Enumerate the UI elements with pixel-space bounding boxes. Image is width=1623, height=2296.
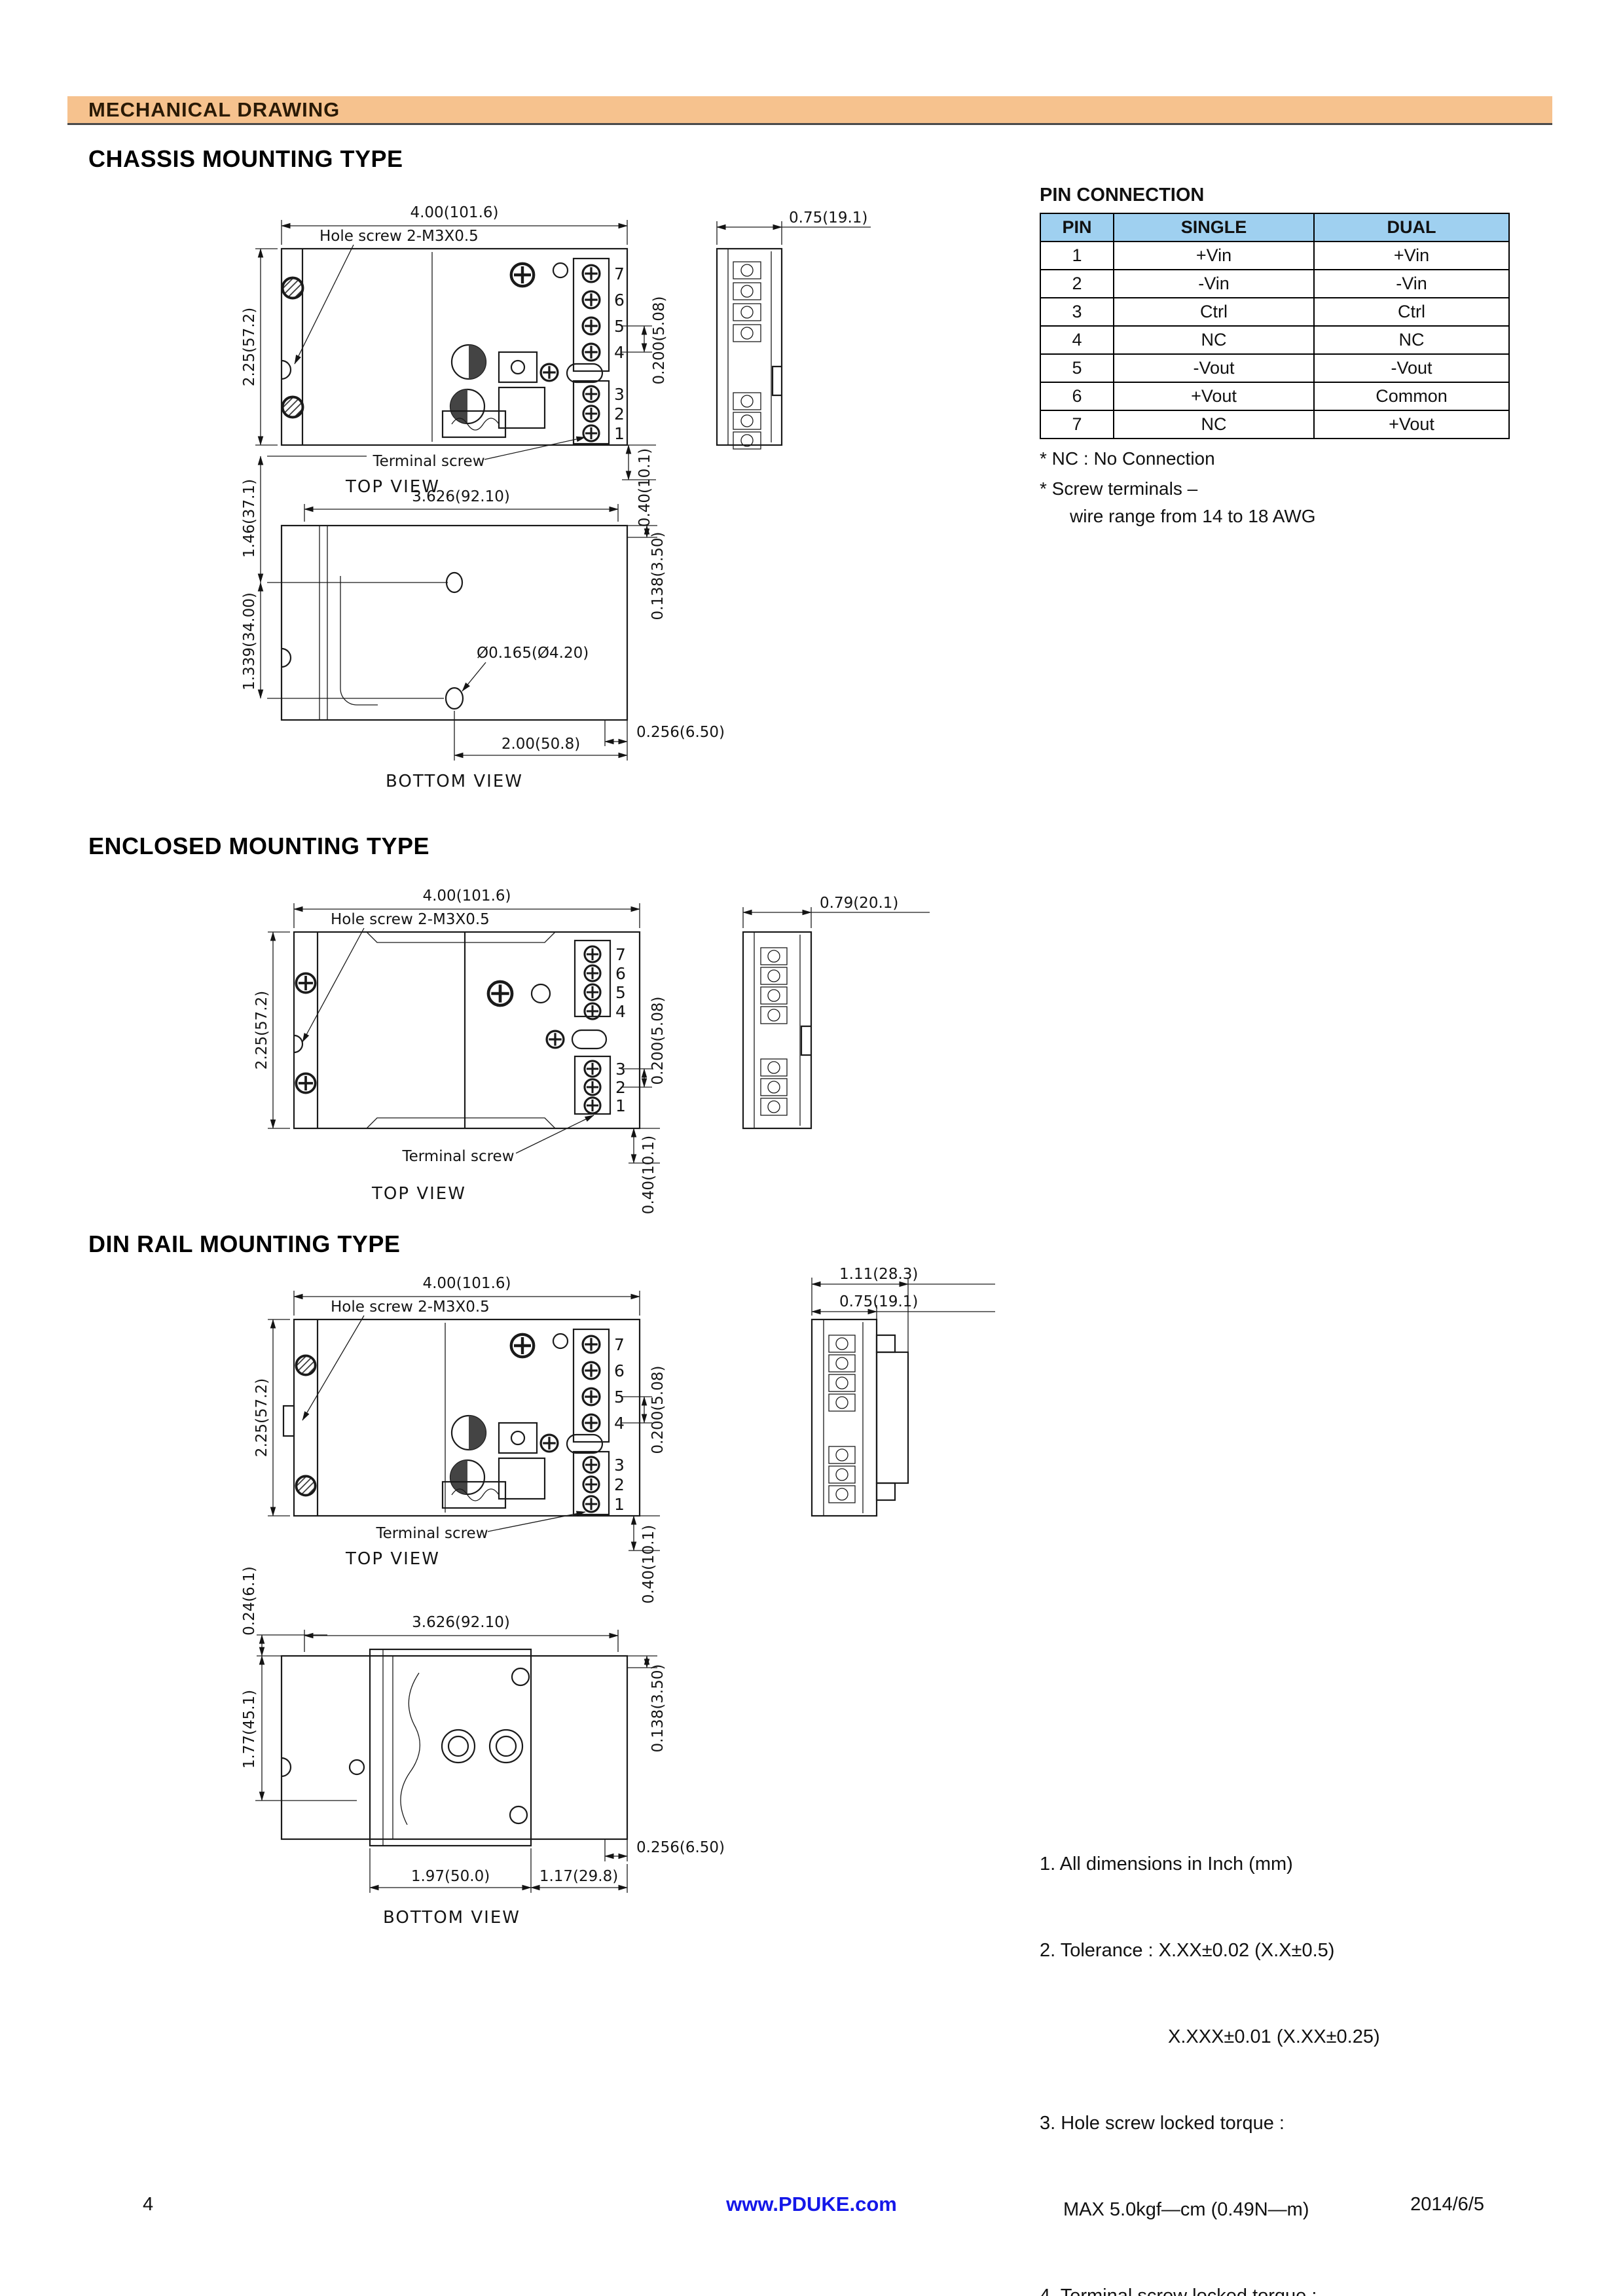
dim-label: 2.25(57.2) xyxy=(241,308,258,386)
dim-label: 1.11(28.3) xyxy=(839,1266,918,1283)
hole-screw-label: Hole screw 2-M3X0.5 xyxy=(331,1299,490,1316)
cell-dual: -Vout xyxy=(1314,354,1509,382)
table-row: 5-Vout-Vout xyxy=(1040,354,1509,382)
pin-number: 5 xyxy=(615,983,626,1002)
cell-single: NC xyxy=(1114,326,1314,354)
pin-number: 6 xyxy=(614,1361,625,1380)
drawing-notes: 1. All dimensions in Inch (mm) 2. Tolera… xyxy=(1040,1792,1380,2296)
pin-number: 3 xyxy=(614,385,625,404)
cell-pin: 6 xyxy=(1040,382,1114,410)
pin-number: 4 xyxy=(615,1002,626,1021)
cell-dual: Common xyxy=(1314,382,1509,410)
cell-dual: -Vin xyxy=(1314,270,1509,298)
pin-number: 3 xyxy=(614,1456,625,1475)
cell-dual: NC xyxy=(1314,326,1509,354)
chassis-side-view-drawing: 0.75(19.1) xyxy=(717,209,871,449)
footer-date: 2014/6/5 xyxy=(1410,2194,1484,2215)
screw-icon xyxy=(541,1435,558,1452)
cell-dual: +Vin xyxy=(1314,242,1509,270)
datasheet-page: MECHANICAL DRAWING CHASSIS MOUNTING TYPE… xyxy=(0,0,1623,2296)
dim-label: 2.25(57.2) xyxy=(253,991,270,1069)
dim-label: 0.24(6.1) xyxy=(241,1566,258,1636)
cell-pin: 1 xyxy=(1040,242,1114,270)
hole-screw-icon xyxy=(296,1476,315,1495)
dim-label: 1.17(29.8) xyxy=(539,1868,618,1885)
dim-label: 0.75(19.1) xyxy=(839,1293,918,1310)
dim-label: 1.46(37.1) xyxy=(241,479,258,558)
hole-dim-label: Ø0.165(Ø4.20) xyxy=(477,645,589,662)
screw-icon xyxy=(488,982,512,1005)
website-link[interactable]: www.PDUKE.com xyxy=(0,2193,1623,2216)
view-label: TOP VIEW xyxy=(345,1549,440,1569)
pin-number: 7 xyxy=(614,264,625,283)
dim-label: 1.77(45.1) xyxy=(241,1690,258,1768)
dim-label: 1.339(34.00) xyxy=(241,592,258,691)
cell-dual: +Vout xyxy=(1314,410,1509,439)
note-line: 2. Tolerance : X.XX±0.02 (X.X±0.5) xyxy=(1040,1936,1380,1965)
table-row: 6+VoutCommon xyxy=(1040,382,1509,410)
dim-label: 3.626(92.10) xyxy=(412,488,510,505)
dim-label: 0.200(5.08) xyxy=(649,1365,666,1454)
wire-range-note: wire range from 14 to 18 AWG xyxy=(1070,506,1512,527)
pin-number: 7 xyxy=(615,945,626,964)
cell-single: +Vin xyxy=(1114,242,1314,270)
hole-screw-icon xyxy=(296,1355,315,1374)
note-line: X.XXX±0.01 (X.XX±0.25) xyxy=(1040,2022,1380,2051)
dim-label: 4.00(101.6) xyxy=(422,888,511,905)
cell-pin: 2 xyxy=(1040,270,1114,298)
dim-label: 0.40(10.1) xyxy=(636,448,653,527)
pin-number: 7 xyxy=(614,1335,625,1354)
table-row: 4NCNC xyxy=(1040,326,1509,354)
dim-label: 4.00(101.6) xyxy=(422,1275,511,1292)
screw-icon xyxy=(511,1335,534,1357)
enclosed-side-view-drawing: 0.79(20.1) xyxy=(743,895,930,1128)
pin-connection-title: PIN CONNECTION xyxy=(1040,185,1512,206)
col-header-pin: PIN xyxy=(1040,213,1114,242)
pin-number: 2 xyxy=(614,1475,625,1494)
dim-label: 0.79(20.1) xyxy=(820,895,898,912)
pin-number: 1 xyxy=(615,1096,626,1115)
view-label: TOP VIEW xyxy=(371,1184,466,1204)
dim-label: 3.626(92.10) xyxy=(412,1614,510,1631)
screw-icon xyxy=(541,364,558,381)
cell-single: -Vin xyxy=(1114,270,1314,298)
terminal-screw-label: Terminal screw xyxy=(372,453,484,470)
hole-screw-icon xyxy=(283,397,303,418)
dim-label: 0.40(10.1) xyxy=(640,1136,657,1214)
cell-pin: 7 xyxy=(1040,410,1114,439)
screw-terminals-note: * Screw terminals – xyxy=(1040,478,1512,499)
hole-screw-label: Hole screw 2-M3X0.5 xyxy=(319,228,479,245)
dim-label: 0.200(5.08) xyxy=(651,296,668,384)
note-line: 4. Terminal screw locked torque : xyxy=(1040,2282,1380,2296)
dim-label: 1.97(50.0) xyxy=(411,1868,490,1885)
pin-connection-table: PIN SINGLE DUAL 1+Vin+Vin 2-Vin-Vin 3Ctr… xyxy=(1040,213,1510,439)
terminal-screw-label: Terminal screw xyxy=(375,1525,488,1542)
table-header-row: PIN SINGLE DUAL xyxy=(1040,213,1509,242)
dim-label: 0.75(19.1) xyxy=(789,209,867,226)
dim-label: 2.25(57.2) xyxy=(253,1378,270,1457)
note-line: 3. Hole screw locked torque : xyxy=(1040,2109,1380,2138)
table-row: 7NC+Vout xyxy=(1040,410,1509,439)
pin-number: 2 xyxy=(614,404,625,423)
dim-label: 0.256(6.50) xyxy=(636,1839,725,1856)
pin-number: 6 xyxy=(615,964,626,983)
terminal-screw-label: Terminal screw xyxy=(401,1148,514,1165)
dim-label: 0.138(3.50) xyxy=(649,1664,666,1752)
hole-screw-icon xyxy=(283,278,303,298)
screw-icon xyxy=(547,1031,564,1048)
table-row: 3CtrlCtrl xyxy=(1040,298,1509,326)
view-label: BOTTOM VIEW xyxy=(383,1908,520,1928)
pin-connection-panel: PIN CONNECTION PIN SINGLE DUAL 1+Vin+Vin… xyxy=(1040,185,1512,527)
dim-label: 2.00(50.8) xyxy=(501,736,580,753)
cell-single: NC xyxy=(1114,410,1314,439)
dim-label: 0.256(6.50) xyxy=(636,724,725,741)
dim-label: 0.138(3.50) xyxy=(649,531,666,620)
cell-single: -Vout xyxy=(1114,354,1314,382)
cell-single: Ctrl xyxy=(1114,298,1314,326)
pin-number: 6 xyxy=(614,291,625,310)
nc-note: * NC : No Connection xyxy=(1040,448,1512,469)
hole-screw-icon xyxy=(296,1073,315,1092)
pin-number: 1 xyxy=(614,424,625,443)
pin-number: 1 xyxy=(614,1495,625,1514)
enclosed-top-view-drawing: 7 6 5 4 3 2 1 4.00(101.6) Hole screw 2-M… xyxy=(253,888,666,1214)
col-header-dual: DUAL xyxy=(1314,213,1509,242)
hole-screw-label: Hole screw 2-M3X0.5 xyxy=(331,911,490,928)
dim-label: 0.200(5.08) xyxy=(649,996,666,1085)
note-line: 1. All dimensions in Inch (mm) xyxy=(1040,1850,1380,1878)
dim-label: 0.40(10.1) xyxy=(640,1525,657,1604)
cell-pin: 3 xyxy=(1040,298,1114,326)
cell-pin: 5 xyxy=(1040,354,1114,382)
din-bottom-view-drawing: 3.626(92.10) 0.24(6.1) 1.77(45.1) 0.138(… xyxy=(241,1566,725,1928)
din-top-view-drawing: 7 6 5 4 3 2 1 4.00(101.6) Hole screw 2-M… xyxy=(253,1275,666,1604)
chassis-top-view-drawing: 7 6 5 4 3 2 1 4.00(101.6) Hole screw 2-M… xyxy=(241,204,668,527)
col-header-single: SINGLE xyxy=(1114,213,1314,242)
cell-dual: Ctrl xyxy=(1314,298,1509,326)
din-side-view-drawing: 1.11(28.3) 0.75(19.1) xyxy=(812,1266,995,1516)
dim-label: 4.00(101.6) xyxy=(410,204,498,221)
view-label: BOTTOM VIEW xyxy=(386,772,523,791)
screw-icon xyxy=(511,264,534,286)
table-row: 1+Vin+Vin xyxy=(1040,242,1509,270)
cell-single: +Vout xyxy=(1114,382,1314,410)
cell-pin: 4 xyxy=(1040,326,1114,354)
table-row: 2-Vin-Vin xyxy=(1040,270,1509,298)
hole-screw-icon xyxy=(296,973,315,992)
